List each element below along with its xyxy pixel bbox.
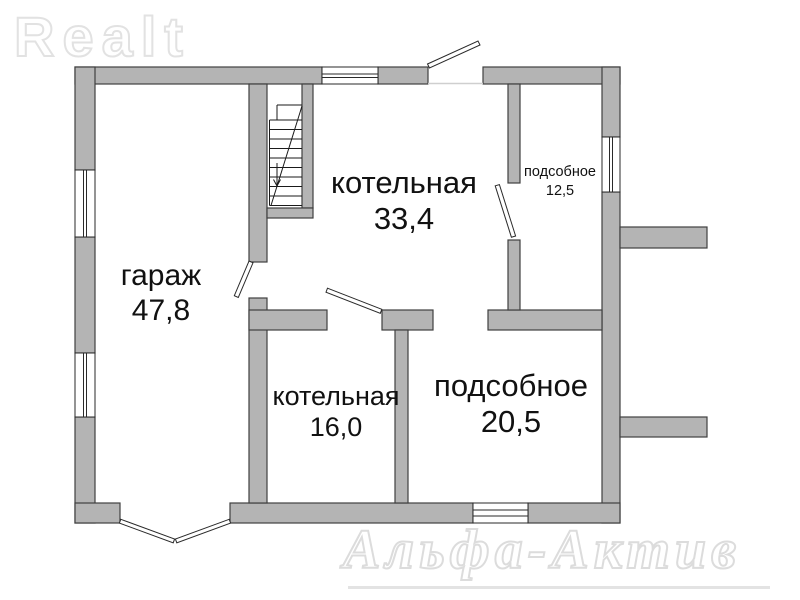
room-label-boiler-large: котельная 33,4 — [331, 165, 477, 237]
room-name: подсобное — [434, 368, 588, 404]
wall-garage-partition-upper — [249, 84, 267, 262]
wall-stub-right-upper — [620, 227, 707, 248]
room-name: котельная — [272, 381, 399, 412]
wall-utility-small-lower — [508, 240, 520, 310]
room-area: 47,8 — [121, 294, 201, 329]
entrance-door-leaf — [428, 41, 481, 68]
room-label-boiler-small: котельная 16,0 — [272, 381, 399, 444]
stair-direction-arrow — [274, 163, 281, 186]
boiler-small-door-leaf — [326, 288, 382, 313]
wall-mid-horizontal-right — [488, 310, 602, 330]
wall-stair-bottom — [267, 208, 313, 218]
alfa-aktiv-watermark: Альфа-Актив — [343, 518, 741, 582]
wall-bottom-garage-stub — [75, 503, 120, 523]
utility-small-door-leaf — [495, 185, 515, 238]
alfa-aktiv-watermark-underline — [348, 586, 770, 589]
staircase — [270, 105, 303, 206]
floor-plan-page: Realt — [0, 0, 800, 600]
room-name: котельная — [331, 165, 477, 201]
room-area: 20,5 — [434, 404, 588, 440]
wall-utility-small-upper — [508, 84, 520, 183]
window-top — [322, 67, 378, 84]
wall-left-middle — [75, 237, 95, 353]
stair-diagonal — [271, 106, 302, 206]
wall-top-right — [483, 67, 620, 84]
wall-mid-horizontal-center — [382, 310, 433, 330]
garage-gate-right-leaf — [175, 519, 230, 543]
wall-top-mid — [378, 67, 428, 84]
garage-gate-left-leaf — [119, 519, 174, 543]
wall-right-lower — [602, 192, 620, 523]
wall-stub-right-lower — [620, 417, 707, 437]
window-left-lower — [75, 353, 95, 417]
wall-top-left — [75, 67, 322, 84]
window-left-upper — [75, 170, 95, 237]
room-label-garage: гараж 47,8 — [121, 259, 201, 329]
room-name: подсобное — [524, 163, 596, 182]
room-area: 12,5 — [524, 182, 596, 201]
room-area: 16,0 — [272, 412, 399, 443]
realt-logo-watermark: Realt — [14, 4, 191, 69]
room-name: гараж — [121, 259, 201, 294]
wall-mid-horizontal-left — [249, 310, 327, 330]
wall-stair-right — [302, 84, 313, 208]
room-label-utility-small: подсобное 12,5 — [524, 163, 596, 201]
room-area: 33,4 — [331, 201, 477, 237]
garage-door-leaf — [234, 261, 253, 298]
wall-left-upper — [75, 67, 95, 170]
room-label-utility-large: подсобное 20,5 — [434, 368, 588, 440]
window-right — [602, 137, 620, 192]
wall-right-upper — [602, 67, 620, 137]
